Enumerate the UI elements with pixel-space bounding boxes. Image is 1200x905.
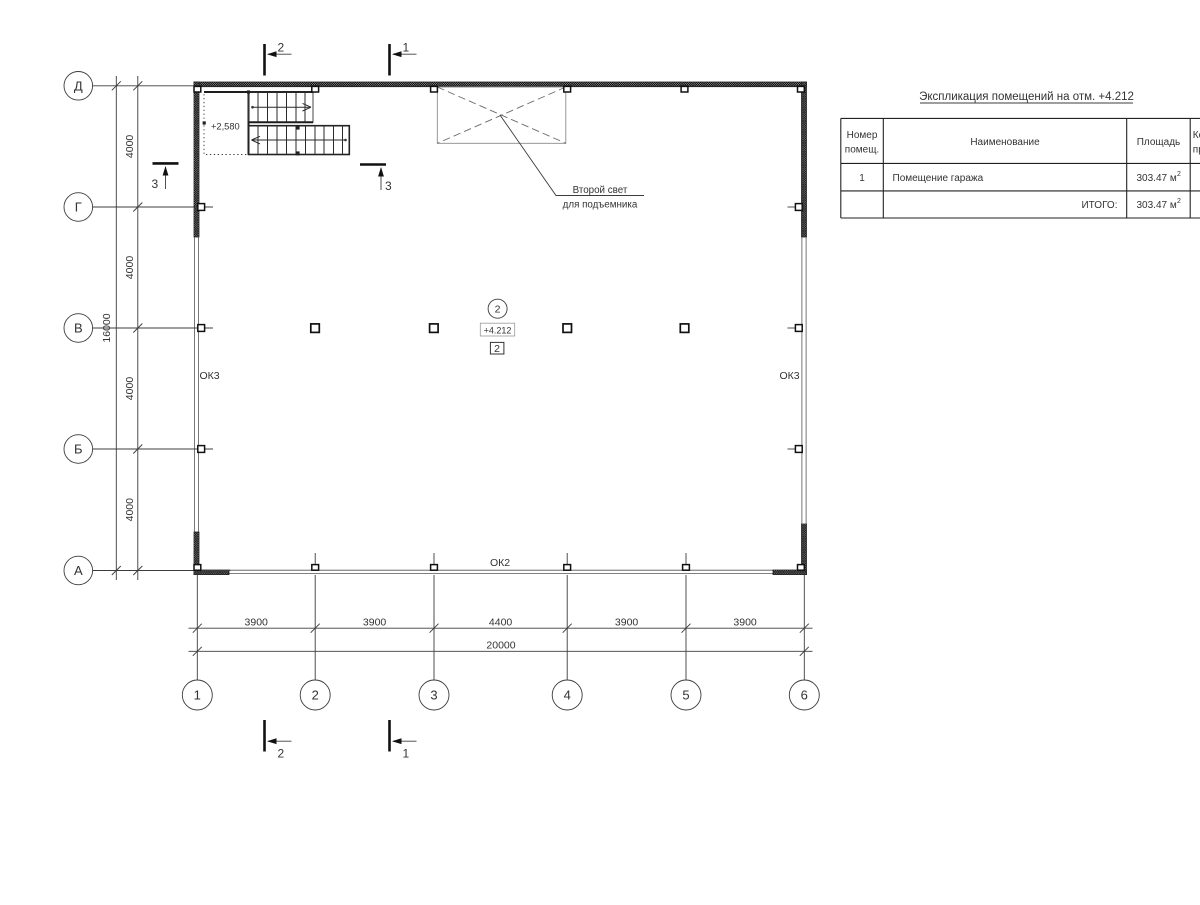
svg-text:3900: 3900	[363, 617, 387, 629]
svg-text:4000: 4000	[124, 498, 136, 522]
svg-text:3900: 3900	[733, 617, 757, 629]
svg-text:Помещение гаража: Помещение гаража	[893, 173, 984, 184]
svg-text:Второй свет: Второй свет	[573, 185, 628, 196]
svg-text:+4.212: +4.212	[484, 326, 512, 336]
svg-text:2: 2	[1177, 198, 1181, 205]
svg-text:3: 3	[430, 688, 437, 703]
svg-text:помещ.: помещ.	[845, 145, 879, 156]
svg-text:2: 2	[1177, 171, 1181, 178]
svg-text:4000: 4000	[124, 256, 136, 280]
svg-text:20000: 20000	[486, 640, 515, 652]
svg-text:для подъемника: для подъемника	[563, 200, 638, 211]
svg-text:3900: 3900	[615, 617, 639, 629]
svg-text:Кол: Кол	[1193, 130, 1200, 141]
svg-text:4000: 4000	[124, 135, 136, 159]
svg-text:ИТОГО:: ИТОГО:	[1081, 200, 1117, 211]
svg-text:Д: Д	[74, 78, 83, 93]
svg-text:1: 1	[403, 41, 410, 55]
svg-text:3900: 3900	[245, 617, 269, 629]
svg-text:6: 6	[801, 688, 808, 703]
svg-text:Г: Г	[75, 200, 82, 215]
svg-text:Площадь: Площадь	[1137, 137, 1181, 148]
svg-text:16000: 16000	[101, 313, 113, 342]
svg-text:4400: 4400	[489, 617, 513, 629]
svg-text:Наименование: Наименование	[970, 137, 1040, 148]
svg-text:2: 2	[494, 343, 500, 355]
svg-text:4: 4	[564, 688, 571, 703]
svg-text:ОК3: ОК3	[200, 370, 220, 382]
svg-text:ОК2: ОК2	[490, 557, 510, 569]
svg-text:2: 2	[495, 304, 501, 316]
svg-text:А: А	[74, 563, 83, 578]
svg-text:В: В	[74, 321, 83, 336]
svg-text:2: 2	[278, 747, 285, 761]
svg-text:Б: Б	[74, 442, 83, 457]
svg-text:303.47 м: 303.47 м	[1137, 200, 1177, 211]
svg-text:ОК3: ОК3	[780, 370, 800, 382]
svg-text:2: 2	[312, 688, 319, 703]
svg-text:5: 5	[682, 688, 689, 703]
svg-text:1: 1	[194, 688, 201, 703]
svg-text:3: 3	[385, 179, 392, 193]
svg-text:4000: 4000	[124, 377, 136, 401]
svg-text:2: 2	[278, 41, 285, 55]
svg-text:3: 3	[152, 177, 159, 191]
svg-text:Номер: Номер	[847, 130, 878, 141]
svg-text:303.47 м: 303.47 м	[1137, 173, 1177, 184]
svg-text:при: при	[1193, 145, 1200, 156]
svg-text:Экспликация помещений на отм.: Экспликация помещений на отм. +4.212	[919, 91, 1134, 103]
svg-text:1: 1	[403, 747, 410, 761]
svg-text:1: 1	[859, 173, 865, 184]
svg-text:+2,580: +2,580	[211, 122, 240, 132]
